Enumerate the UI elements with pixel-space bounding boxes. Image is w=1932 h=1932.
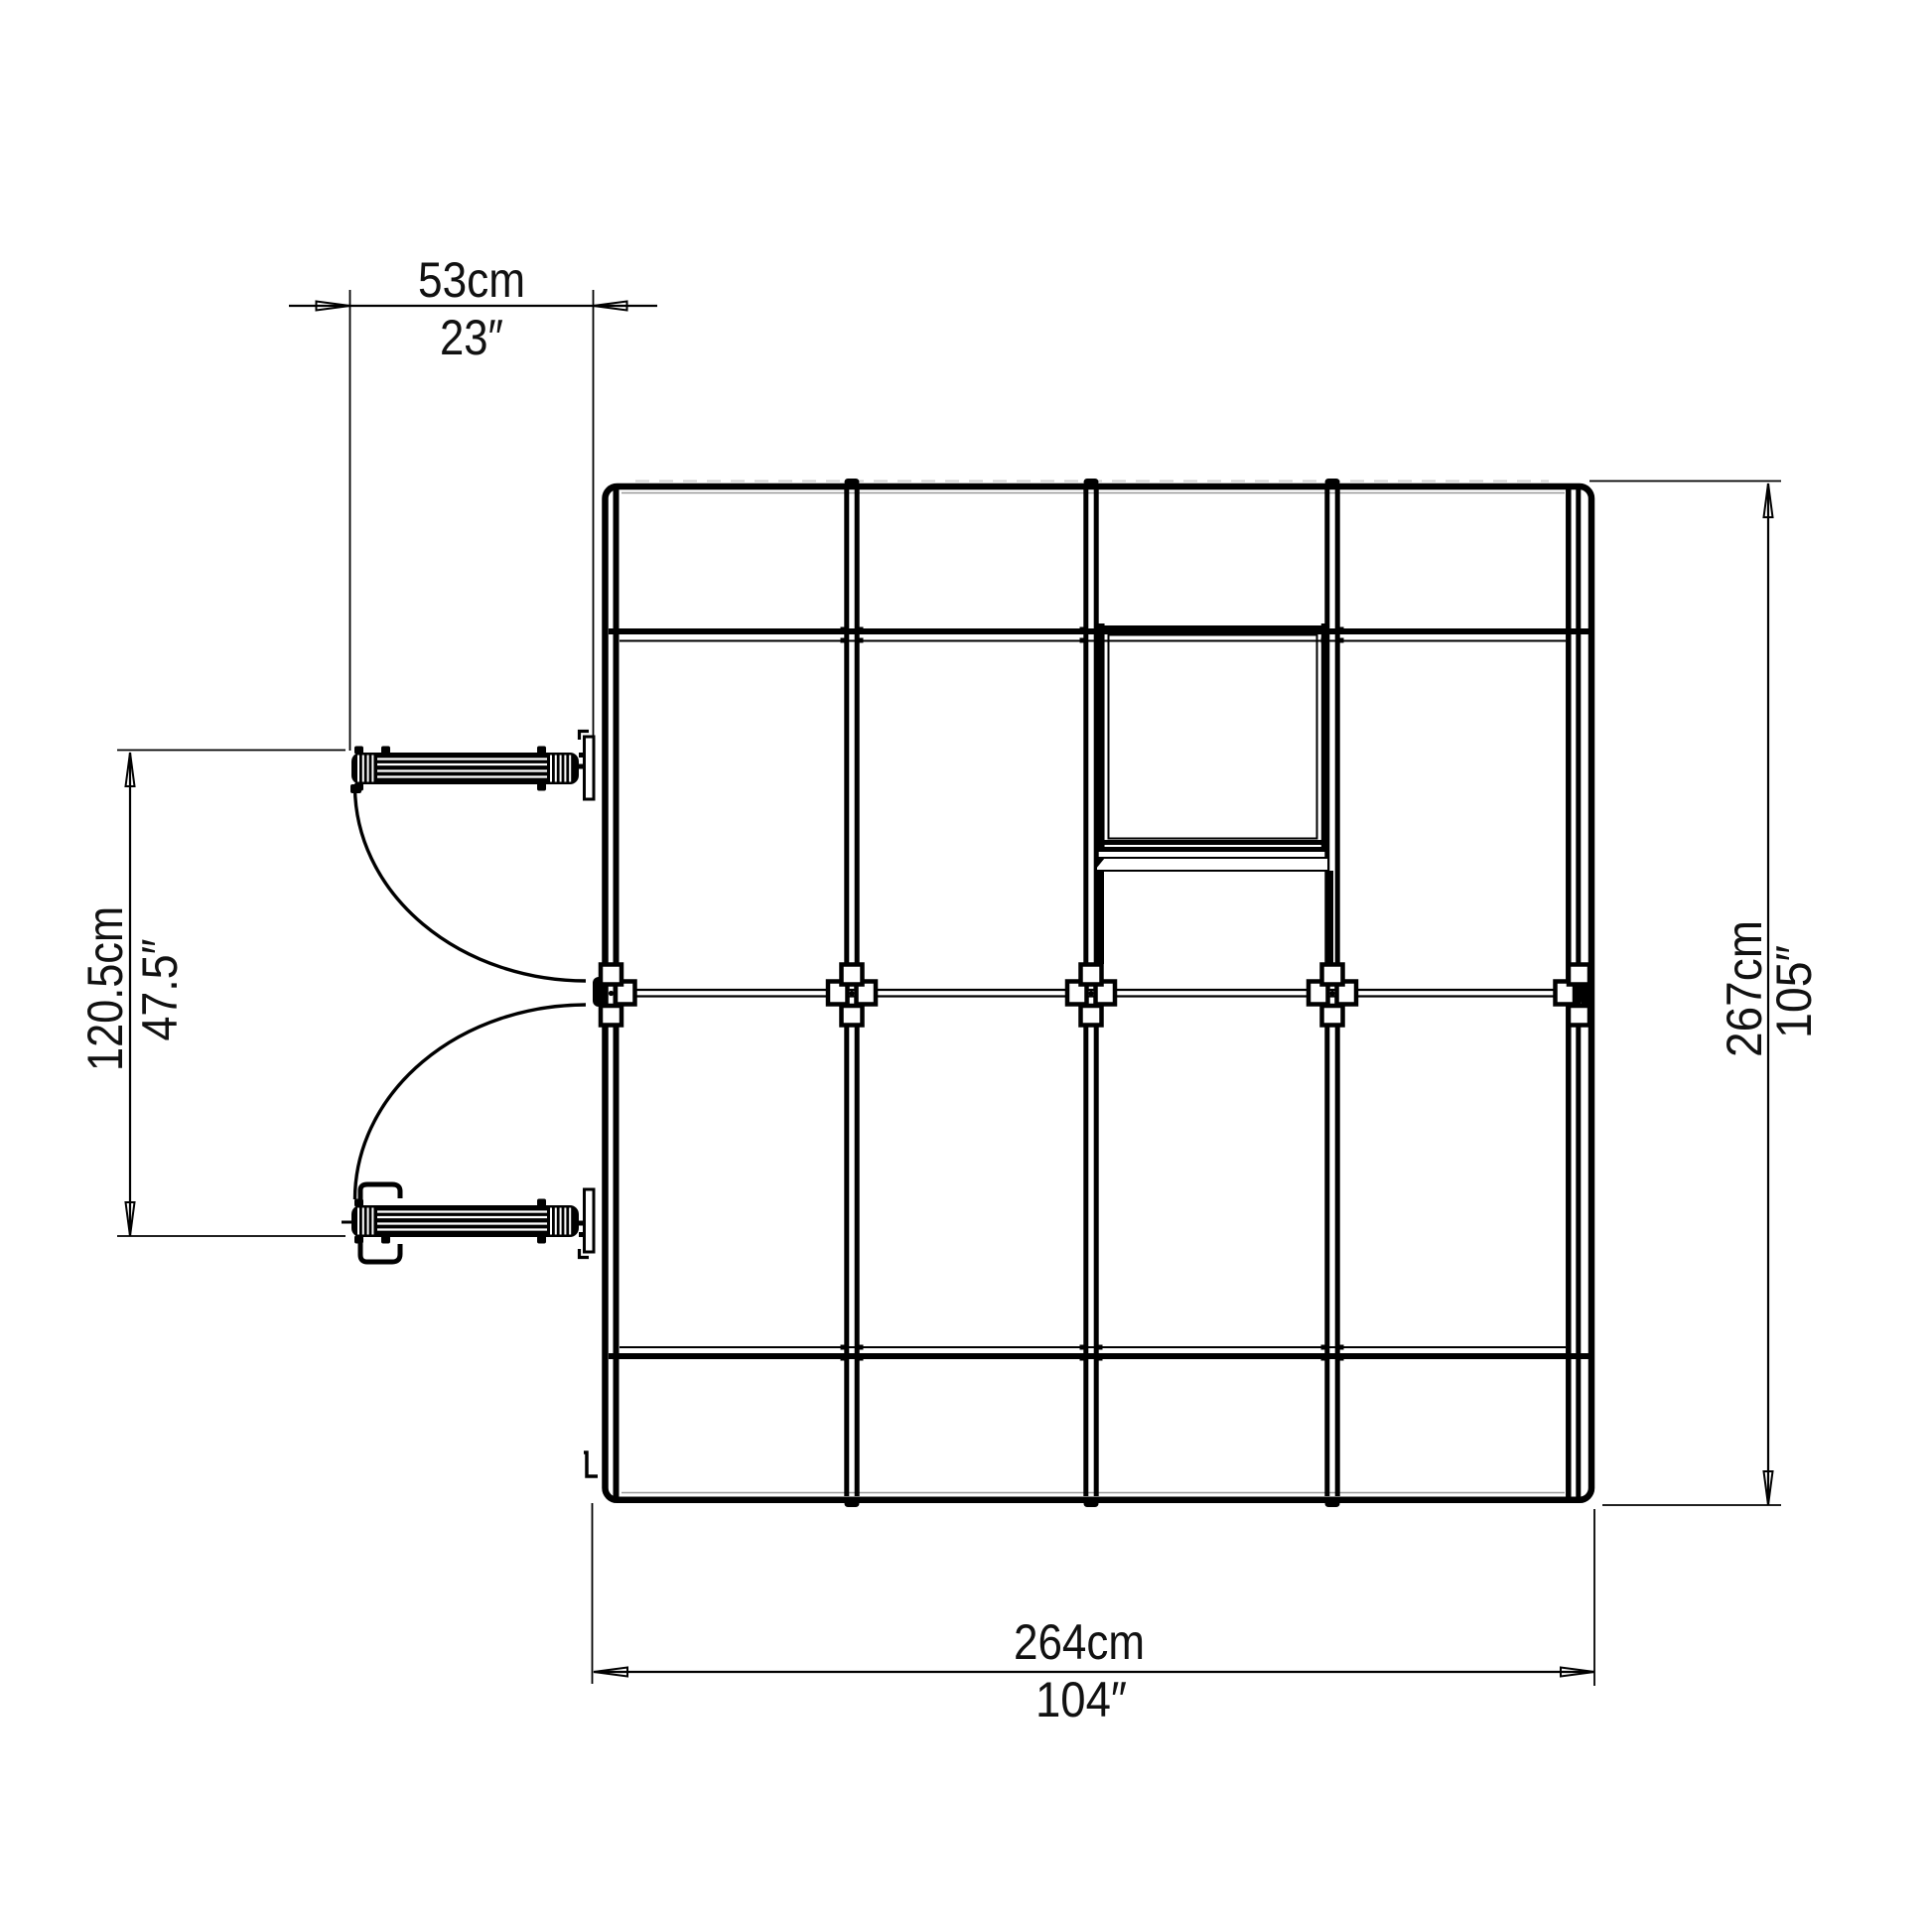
svg-text:105″: 105″ bbox=[1766, 945, 1822, 1038]
svg-text:23″: 23″ bbox=[440, 310, 503, 365]
svg-text:53cm: 53cm bbox=[418, 252, 525, 308]
svg-text:104″: 104″ bbox=[1035, 1672, 1127, 1727]
svg-text:264cm: 264cm bbox=[1014, 1614, 1145, 1670]
svg-text:47.5″: 47.5″ bbox=[132, 939, 188, 1041]
svg-text:120.5cm: 120.5cm bbox=[77, 906, 133, 1071]
svg-text:267cm: 267cm bbox=[1717, 920, 1772, 1057]
